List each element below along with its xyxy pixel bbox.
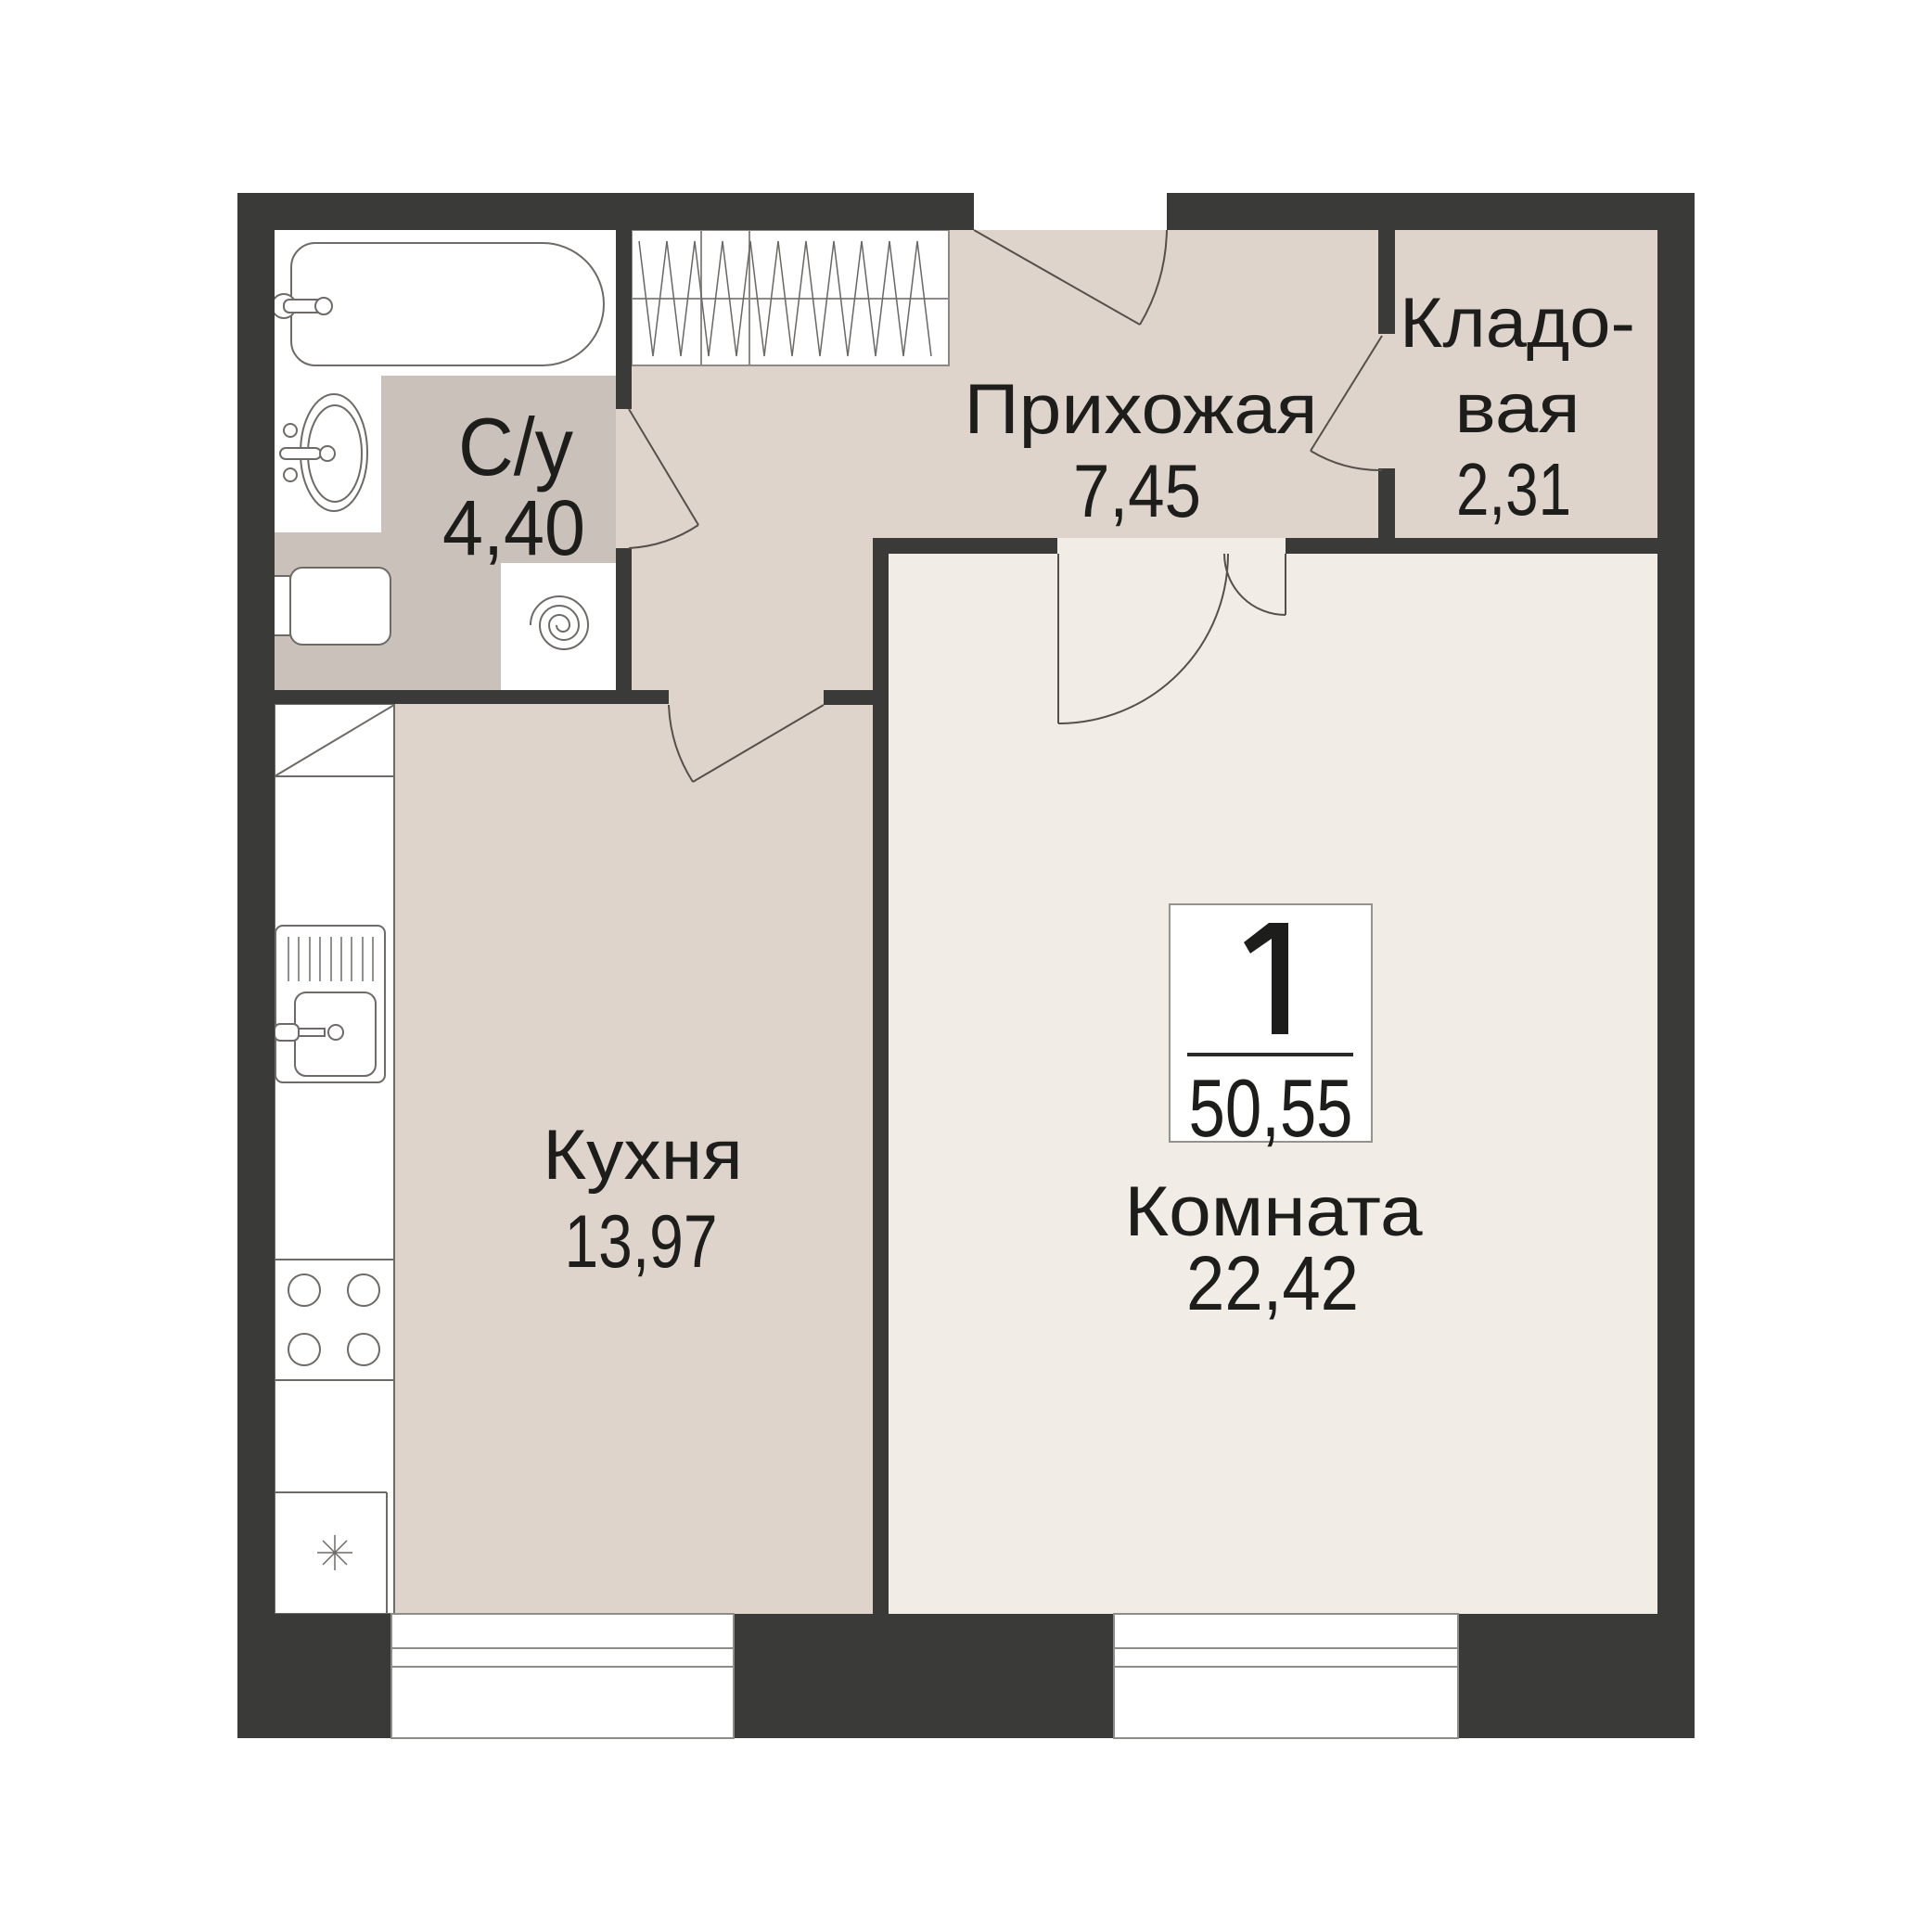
svg-text:4,40: 4,40 [442,484,585,571]
svg-text:С/у: С/у [458,403,573,493]
svg-text:13,97: 13,97 [565,1200,718,1284]
svg-text:22,42: 22,42 [1186,1240,1359,1326]
svg-text:50,55: 50,55 [1189,1062,1353,1154]
svg-text:вая: вая [1454,369,1580,448]
svg-text:Комната: Комната [1124,1171,1422,1251]
svg-text:2,31: 2,31 [1456,448,1571,531]
svg-text:7,45: 7,45 [1073,450,1201,533]
svg-text:Кухня: Кухня [543,1115,743,1194]
svg-text:Прихожая: Прихожая [965,369,1318,448]
svg-text:Кладо-: Кладо- [1400,285,1635,363]
